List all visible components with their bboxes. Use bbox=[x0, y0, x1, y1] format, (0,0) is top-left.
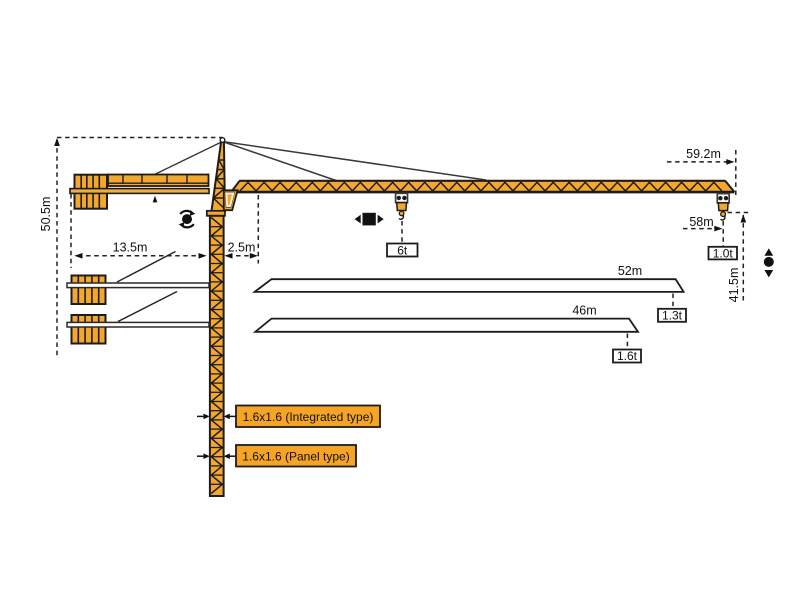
svg-text:59.2m: 59.2m bbox=[686, 147, 721, 161]
svg-text:1.0t: 1.0t bbox=[713, 246, 734, 260]
svg-text:58m: 58m bbox=[689, 215, 713, 229]
svg-text:52m: 52m bbox=[618, 264, 642, 278]
svg-text:6t: 6t bbox=[397, 243, 408, 257]
svg-text:2.5m: 2.5m bbox=[228, 241, 256, 255]
svg-text:50.5m: 50.5m bbox=[39, 197, 53, 232]
svg-text:1.6x1.6 (Integrated type): 1.6x1.6 (Integrated type) bbox=[243, 410, 374, 424]
svg-text:1.3t: 1.3t bbox=[662, 309, 683, 323]
svg-text:46m: 46m bbox=[572, 303, 596, 317]
svg-text:1.6t: 1.6t bbox=[617, 349, 638, 363]
svg-text:13.5m: 13.5m bbox=[113, 241, 148, 255]
svg-text:1.6x1.6 (Panel type): 1.6x1.6 (Panel type) bbox=[242, 449, 349, 463]
svg-text:41.5m: 41.5m bbox=[727, 268, 741, 303]
